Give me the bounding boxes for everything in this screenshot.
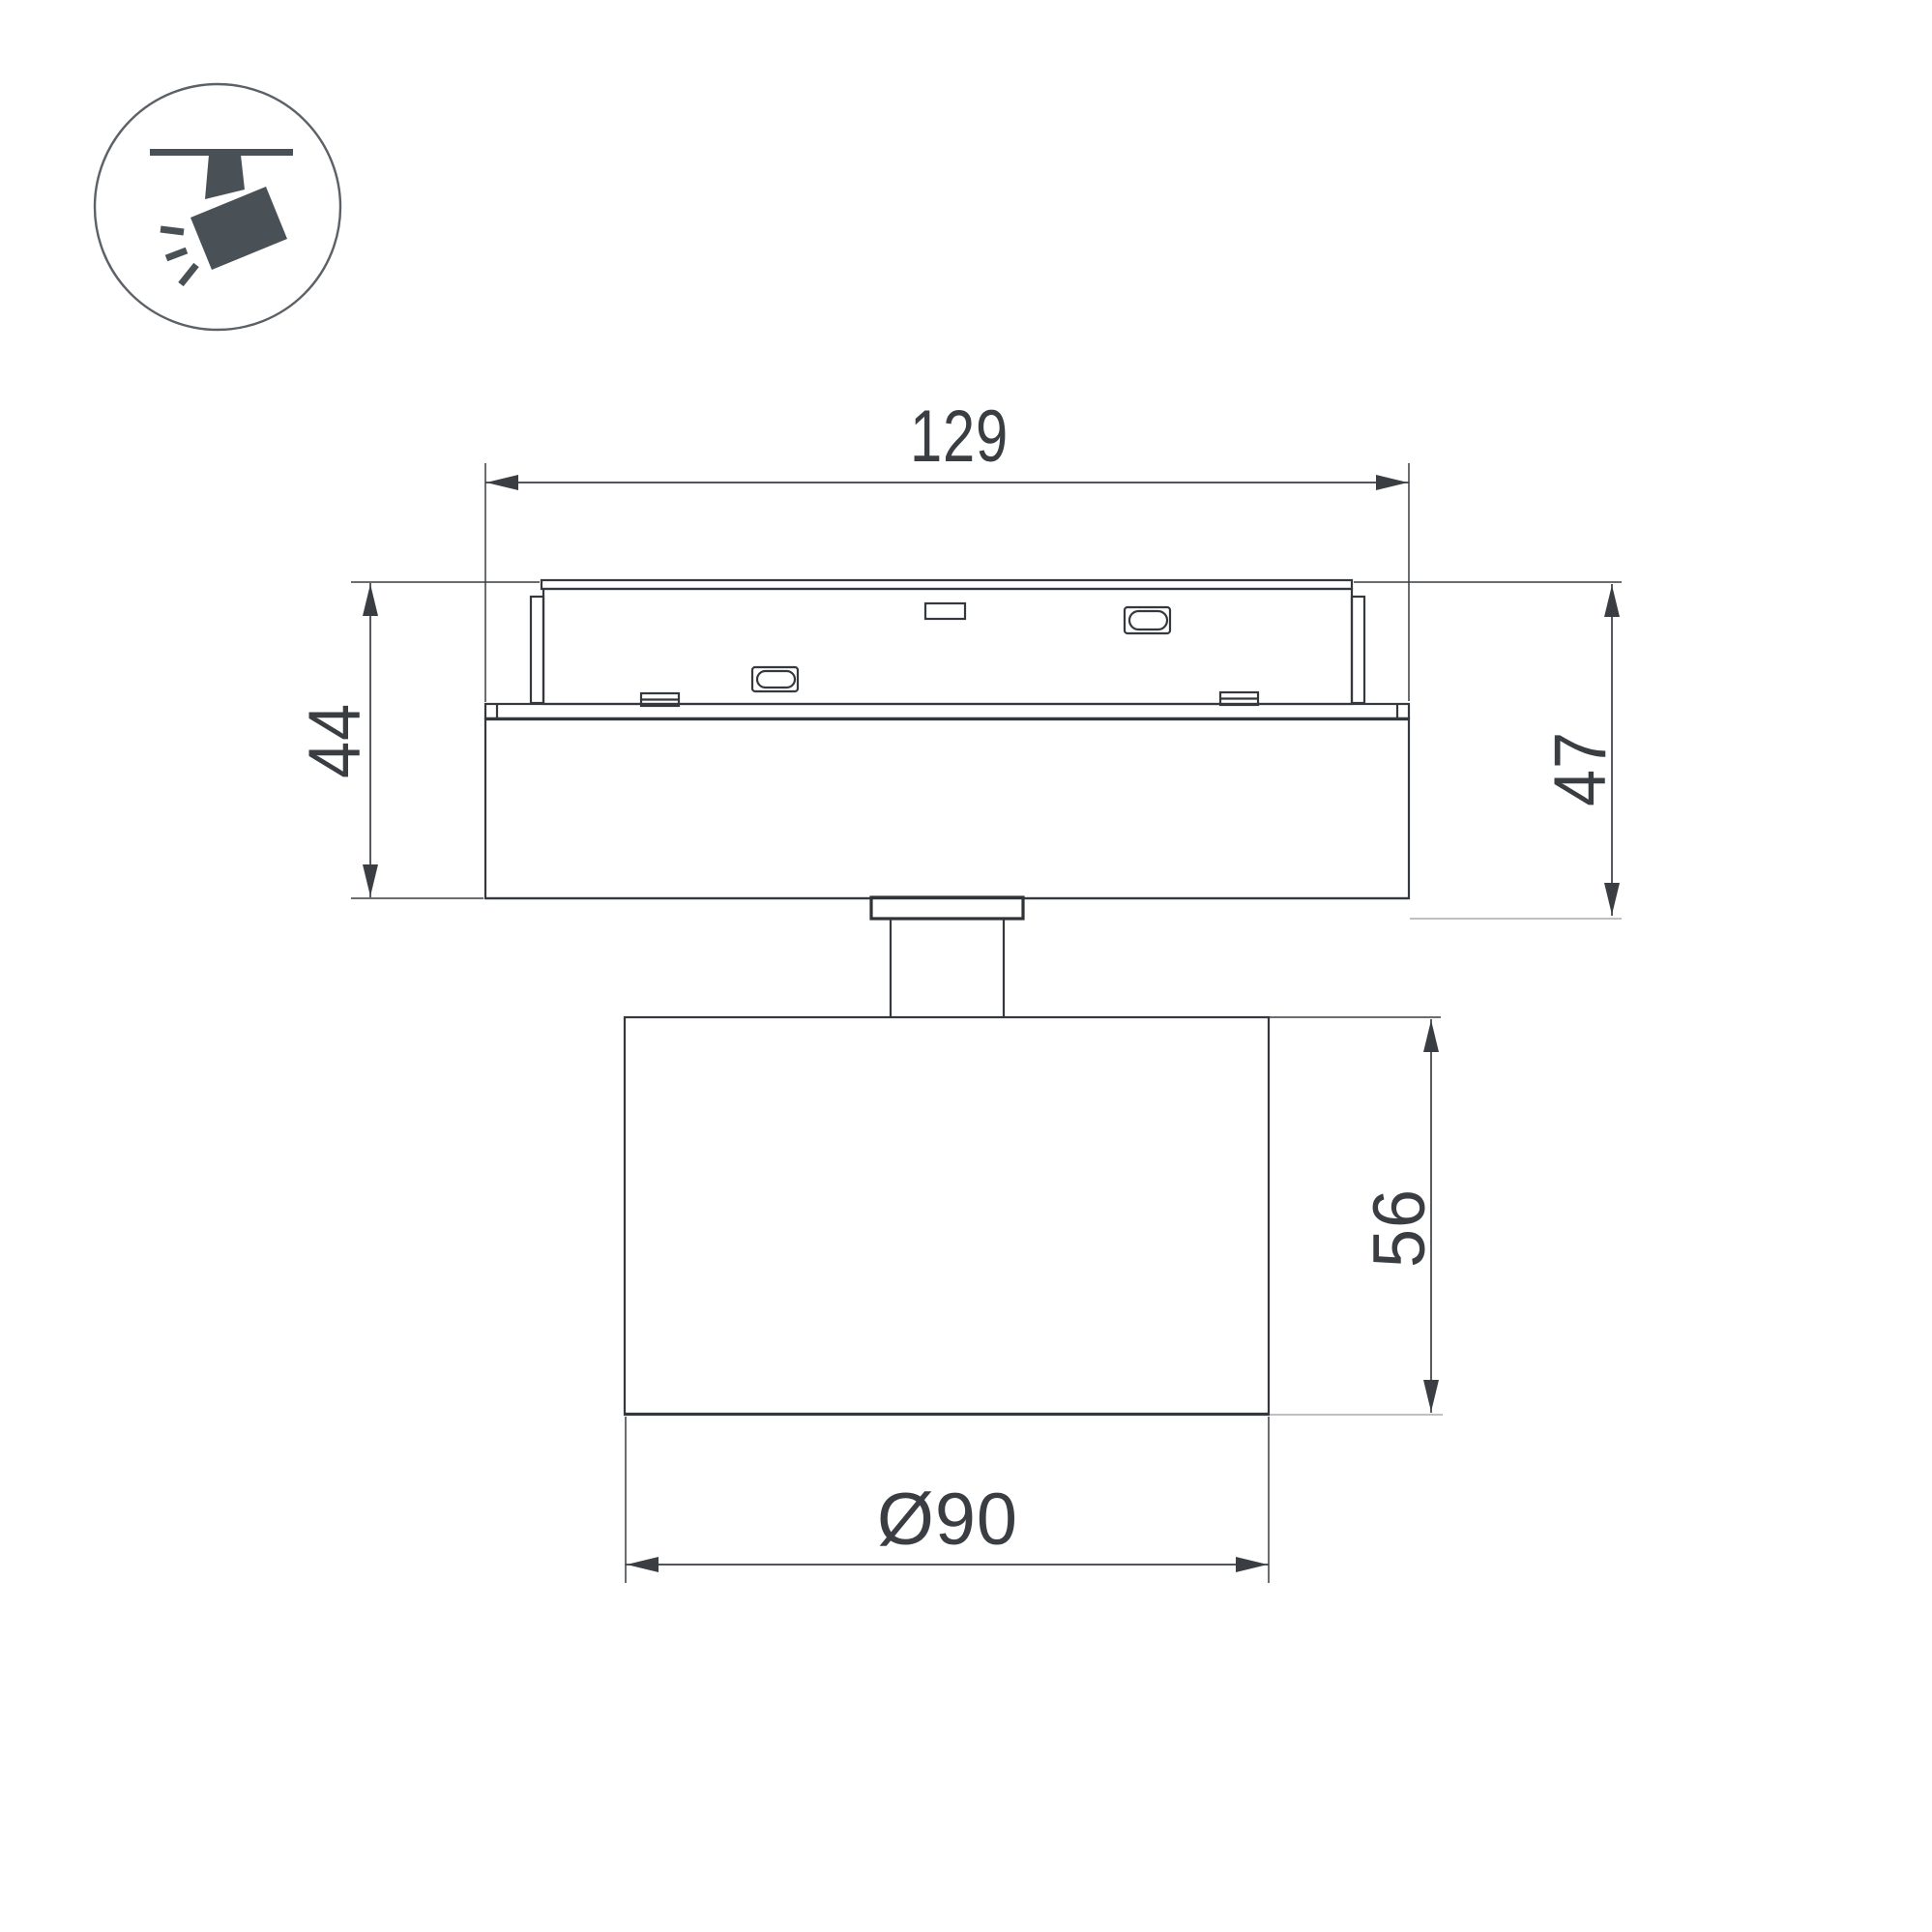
neck-collar [871, 897, 1023, 919]
arrow-right [1236, 1557, 1268, 1572]
adapter-body [543, 589, 1352, 704]
dimension-width-129: 129 [485, 395, 1409, 702]
dim-label-height-left: 44 [294, 703, 376, 778]
right-fixing-button [1125, 607, 1170, 633]
technical-drawing: 129 44 47 56 Ø90 [0, 0, 1932, 1932]
arrow-up [363, 584, 378, 616]
neck-stem [891, 919, 1004, 1017]
left-spring-tab [531, 597, 543, 703]
arrow-up [1423, 1020, 1439, 1052]
adapter-slot [925, 603, 965, 619]
base-box [485, 718, 1409, 898]
arrow-down [1604, 883, 1620, 915]
luminaire-front-view [485, 580, 1409, 1415]
arrow-left [486, 475, 518, 490]
arrow-down [1423, 1380, 1439, 1412]
icon-track-bar [150, 149, 293, 156]
arrow-left [627, 1557, 659, 1572]
dim-label-width: 129 [910, 395, 1009, 478]
dim-label-head-height: 56 [1359, 1188, 1441, 1268]
dimension-height-44: 44 [294, 582, 540, 898]
adapter-flange [485, 704, 1409, 718]
drawing-canvas: 129 44 47 56 Ø90 [0, 0, 1932, 1932]
dim-label-height-right: 47 [1539, 731, 1622, 806]
dimension-head-height-56: 56 [1270, 1017, 1443, 1415]
arrow-up [1604, 585, 1620, 617]
left-fixing-button [752, 667, 798, 691]
dimension-height-47: 47 [1354, 582, 1622, 919]
right-spring-tab [1352, 597, 1364, 703]
dim-label-diameter: Ø90 [877, 1478, 1018, 1561]
lamp-head-cylinder [625, 1017, 1269, 1415]
arrow-right [1376, 475, 1408, 490]
dimension-diameter-90: Ø90 [626, 1417, 1269, 1583]
track-plate [542, 580, 1352, 589]
track-light-icon [95, 84, 340, 330]
arrow-down [363, 864, 378, 896]
